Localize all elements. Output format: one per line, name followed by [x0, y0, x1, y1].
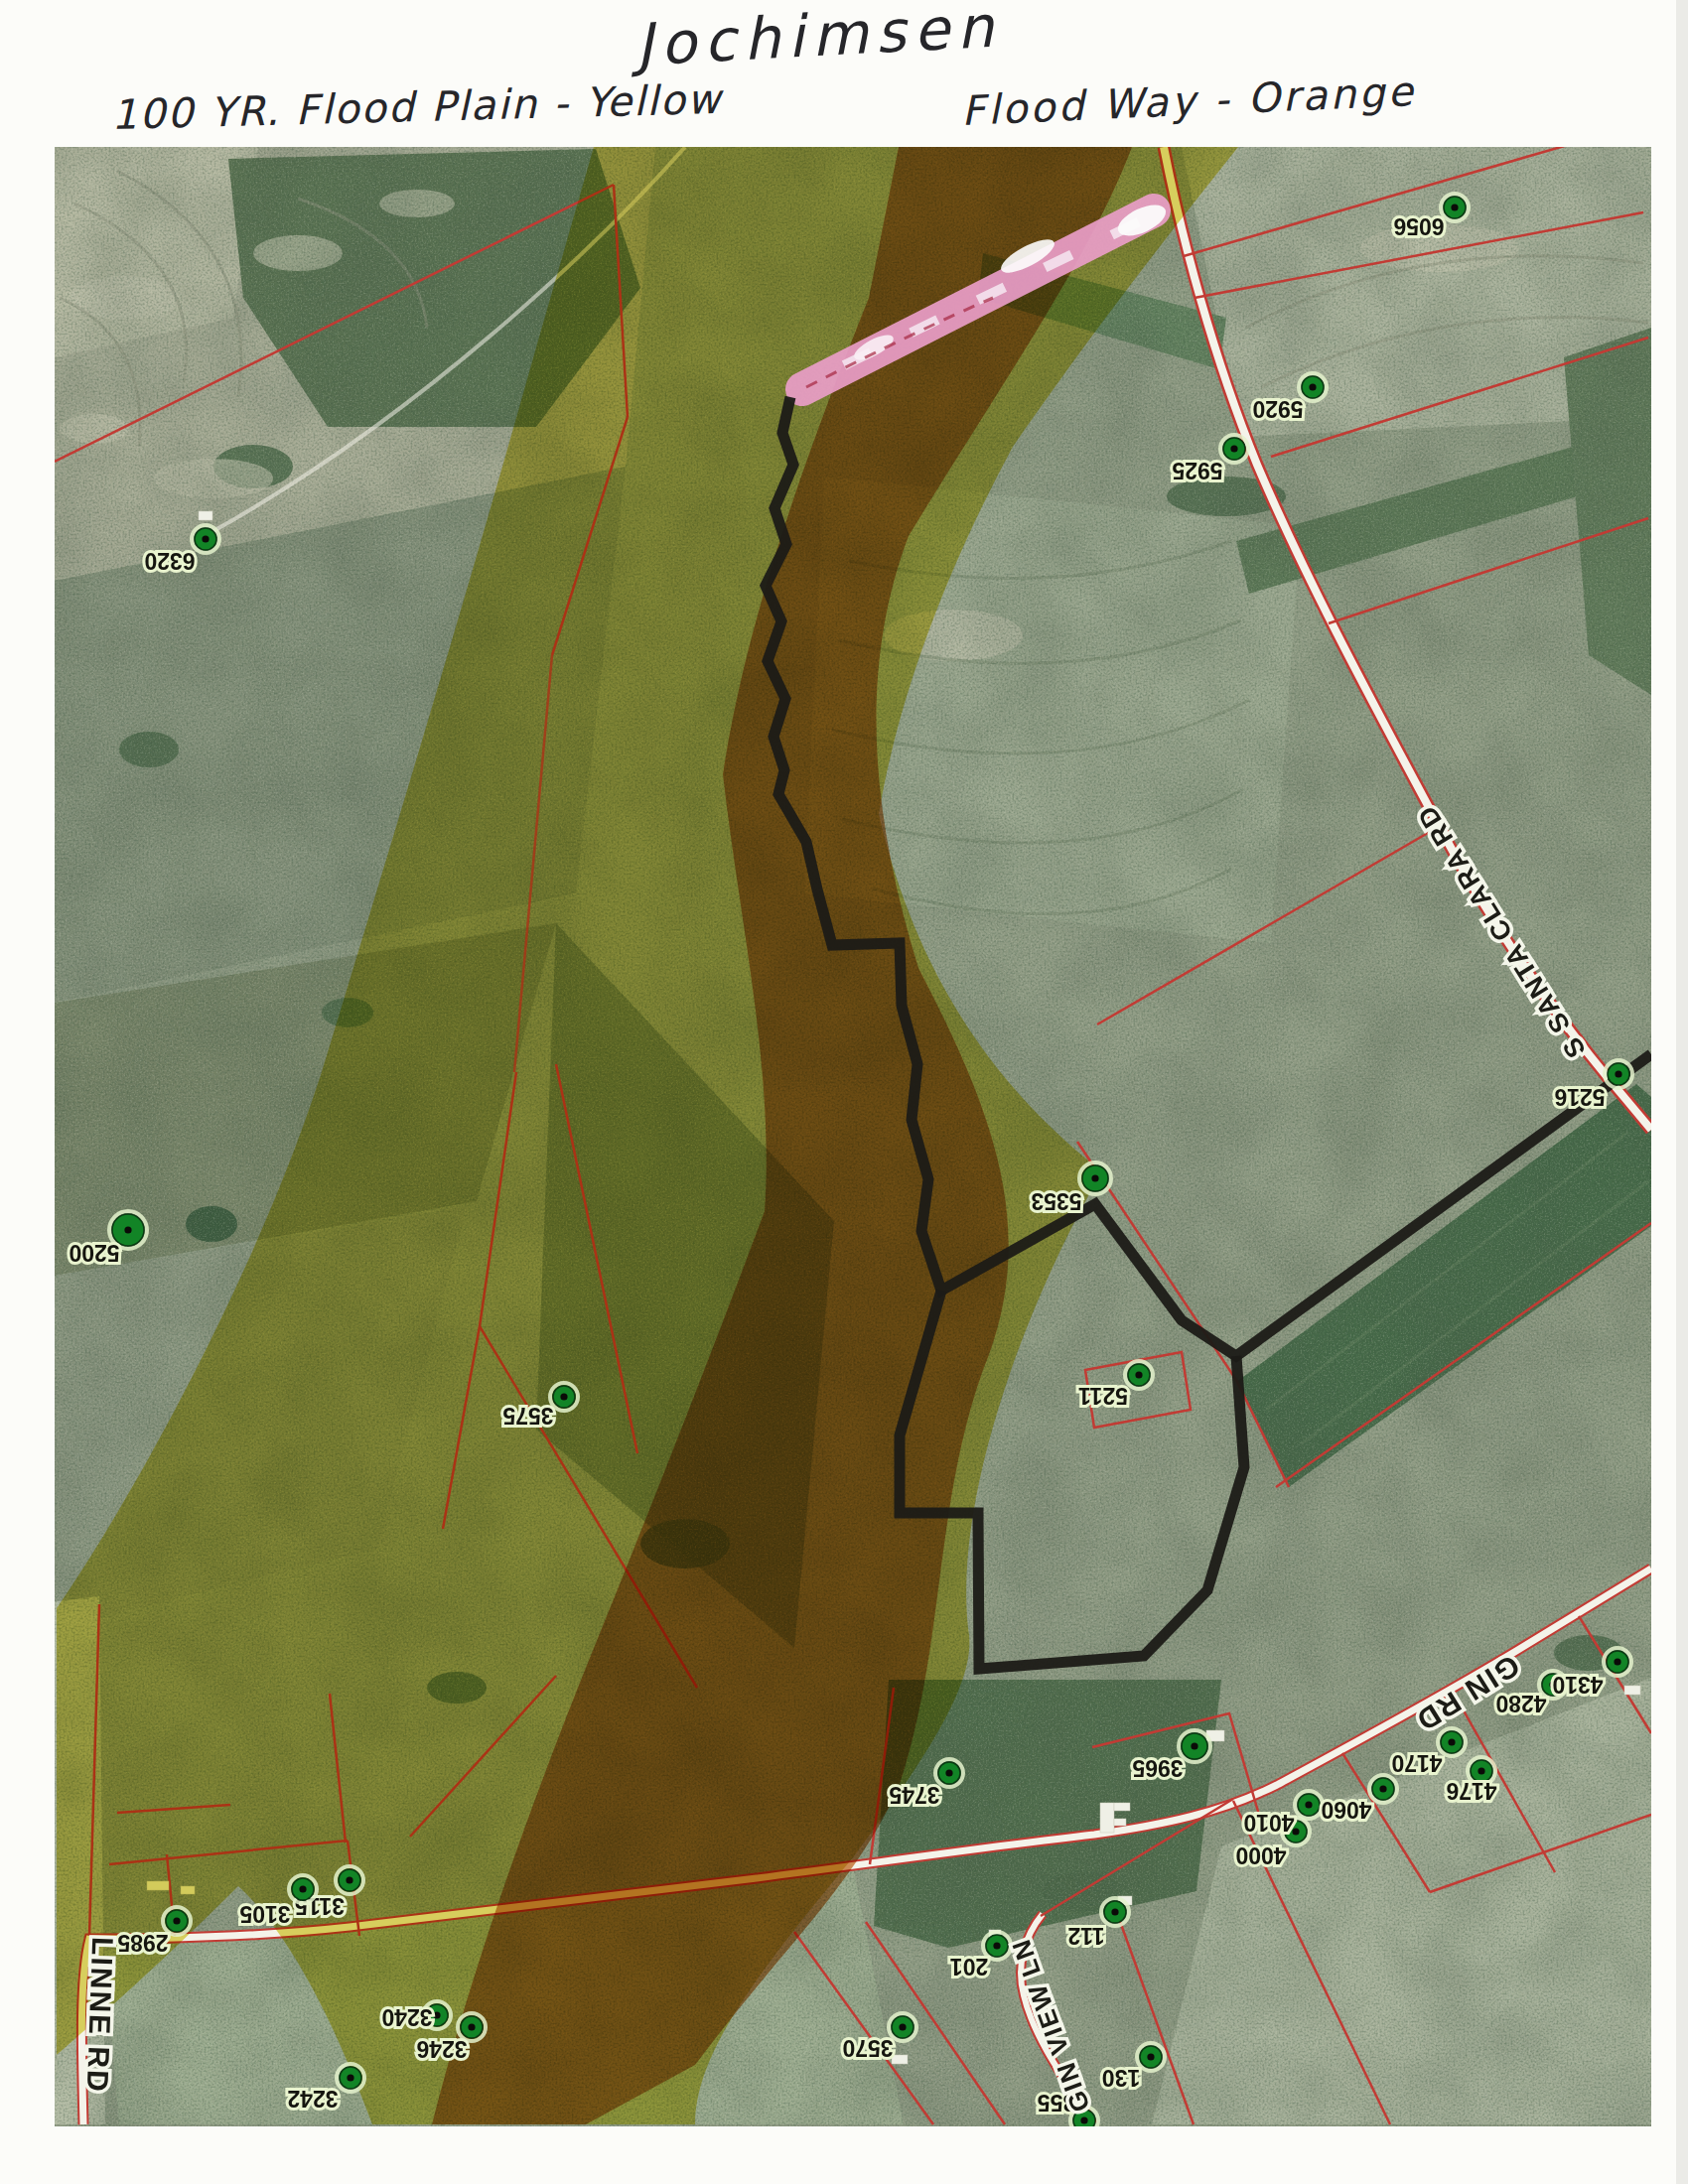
address-label: 2985	[117, 1930, 168, 1956]
marker-dot-center	[173, 1917, 180, 1924]
address-label: 5216	[1554, 1084, 1605, 1110]
marker-dot-center	[1111, 1908, 1118, 1915]
marker-dot-center	[1147, 2053, 1154, 2060]
marker-dot-center	[1477, 1767, 1484, 1774]
marker-dot-center	[1091, 1174, 1098, 1181]
marker-dot-center	[433, 2011, 440, 2018]
address-marker: 3240	[381, 2001, 451, 2030]
marker-dot-center	[1448, 1738, 1455, 1745]
marker-dot-center	[1309, 383, 1316, 390]
marker-dot-center	[1379, 1785, 1386, 1792]
address-label: 5920	[1252, 396, 1303, 422]
scanned-flood-map-page: Jochimsen 100 YR. Flood Plain - Yellow F…	[0, 0, 1688, 2184]
address-label: 112	[1067, 1923, 1104, 1949]
marker-dot-center	[468, 2023, 475, 2030]
marker-dot-center	[1191, 1742, 1197, 1749]
marker-dot-center	[1451, 204, 1458, 210]
marker-dot-center	[346, 1876, 352, 1883]
marker-dot-center	[1614, 1658, 1620, 1665]
address-label: 3570	[842, 2035, 893, 2061]
road-name-label: LINNE RD	[81, 1937, 119, 2095]
aerial-flood-map: 6056592059256320520053535216521135753745…	[0, 0, 1688, 2184]
marker-dot-center	[1080, 2116, 1087, 2123]
marker-dot-center	[560, 1393, 567, 1400]
marker-dot-center	[1305, 1801, 1312, 1808]
marker-dot-center	[945, 1769, 952, 1776]
marker-dot-center	[1135, 1371, 1142, 1378]
address-label: 4176	[1446, 1778, 1496, 1804]
address-label: 5200	[69, 1240, 119, 1266]
marker-dot-center	[899, 2023, 906, 2030]
address-label: 4310	[1552, 1672, 1603, 1698]
address-label: 4000	[1235, 1843, 1286, 1868]
address-label: 130	[1102, 2065, 1140, 2091]
marker-dot-center	[993, 1942, 1000, 1949]
address-label: 4170	[1391, 1750, 1442, 1776]
address-label: 5353	[1031, 1188, 1081, 1214]
address-label: 3240	[381, 2004, 432, 2030]
marker-dot-center	[202, 535, 209, 542]
address-label: 3745	[889, 1782, 939, 1808]
address-label: 3242	[287, 2086, 338, 2112]
address-label: 3105	[239, 1901, 290, 1927]
address-label: 3965	[1132, 1755, 1183, 1781]
marker-dot-center	[1615, 1070, 1621, 1077]
address-label: 6320	[144, 548, 195, 574]
address-label: 3575	[502, 1403, 553, 1429]
address-label: 4280	[1495, 1691, 1546, 1716]
address-label: 4060	[1321, 1797, 1371, 1823]
address-label: 6056	[1393, 213, 1444, 239]
address-label: 201	[950, 1954, 989, 1979]
address-label: 3246	[416, 2036, 467, 2062]
marker-dot-center	[299, 1885, 306, 1892]
address-label: 5211	[1078, 1383, 1128, 1409]
address-label: 4010	[1243, 1810, 1294, 1836]
marker-dot-center	[347, 2074, 353, 2081]
marker-dot-center	[1230, 445, 1237, 452]
address-label: 5925	[1172, 458, 1222, 483]
marker-dot-center	[124, 1226, 131, 1233]
